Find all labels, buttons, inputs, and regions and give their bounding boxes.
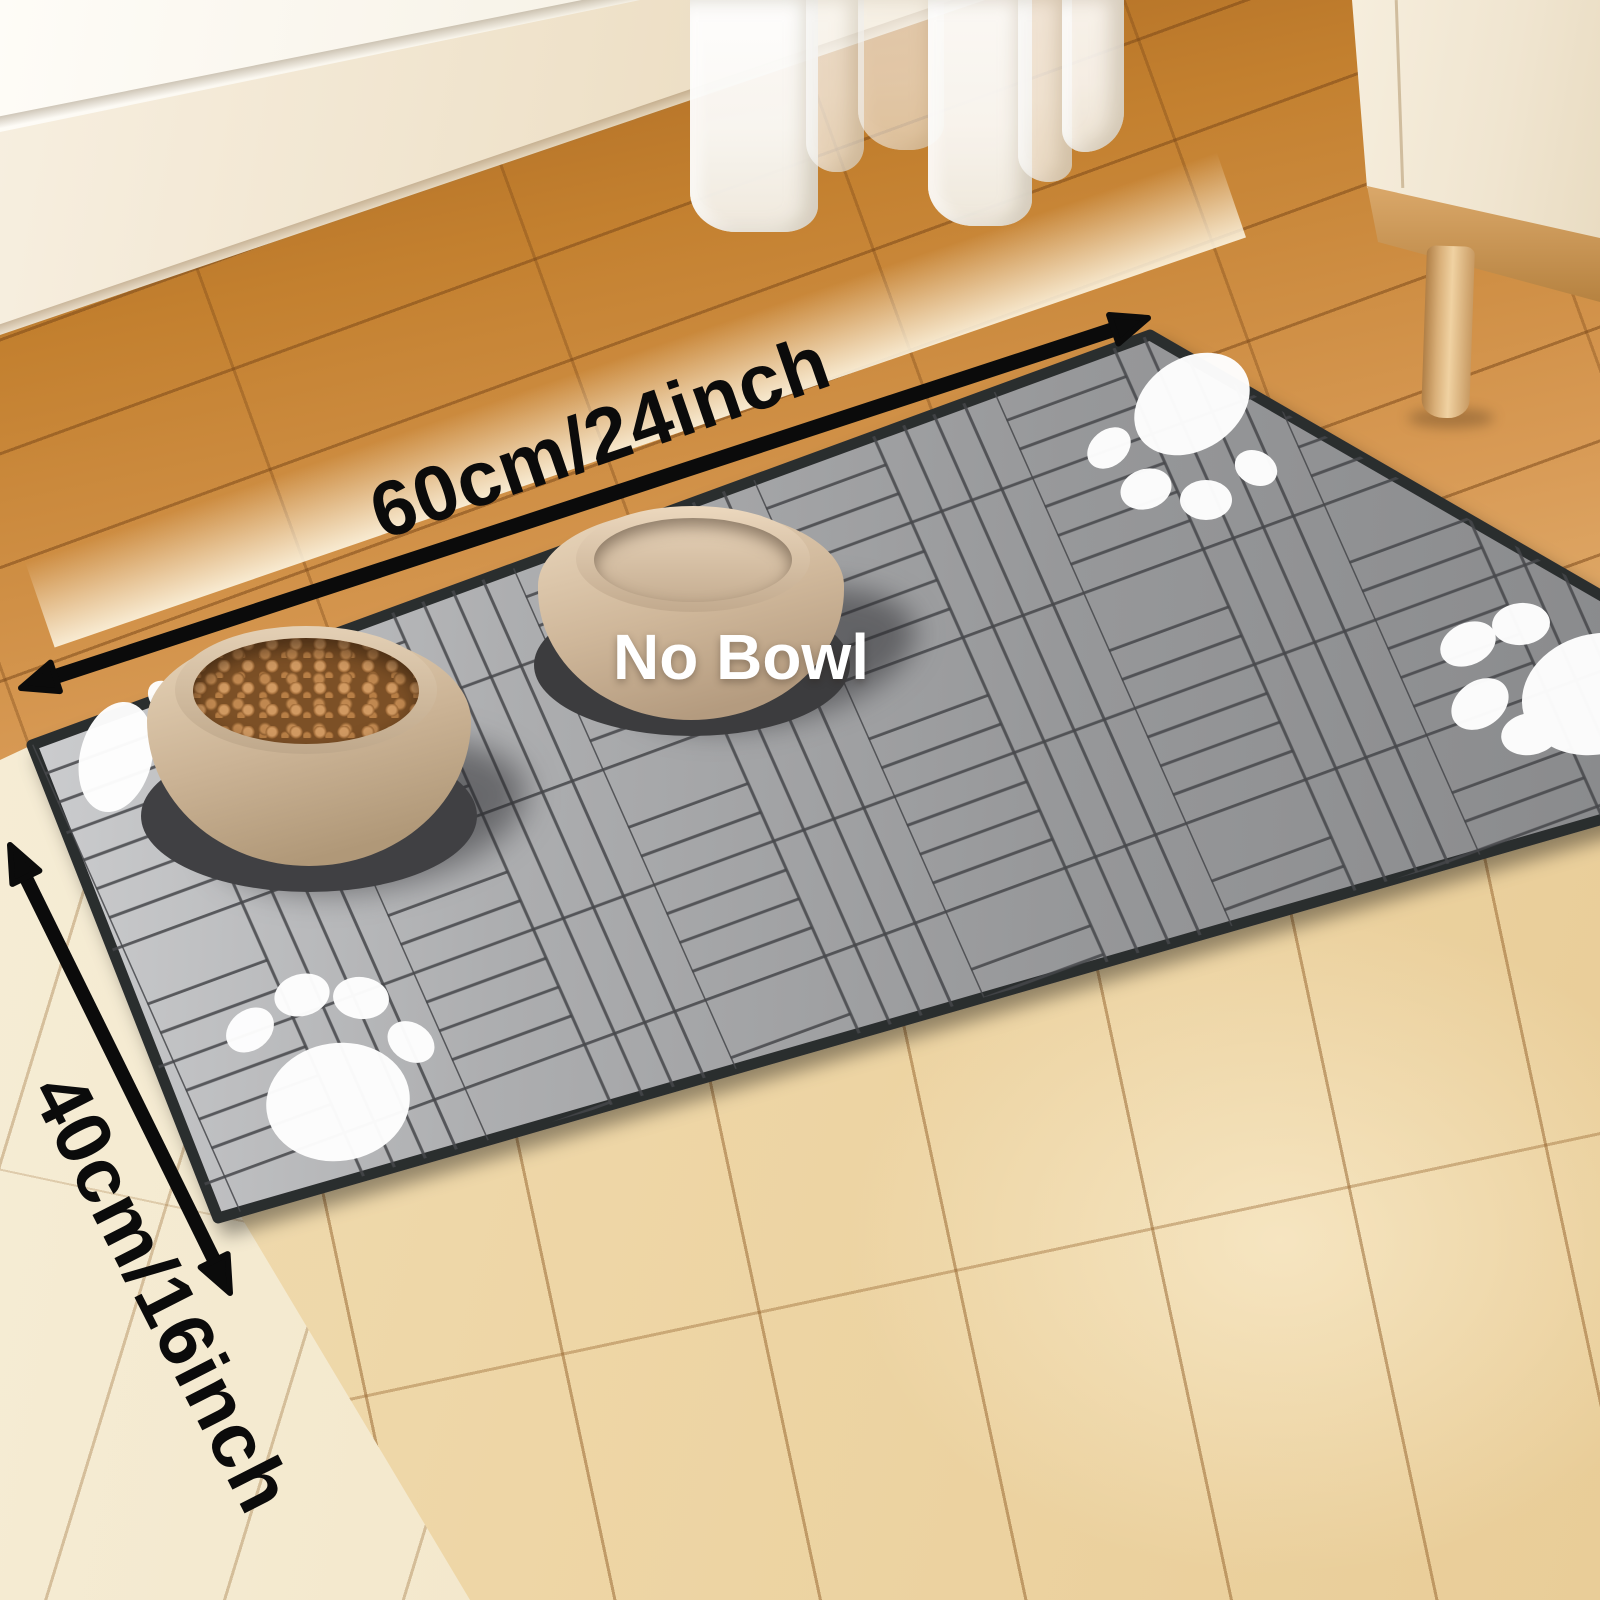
no-bowl-label: No Bowl [613, 620, 869, 694]
mat-herringbone-pattern [32, 335, 1600, 1218]
product-photo-scene: 60cm/24inch 40cm/16inch No Bowl [0, 0, 1600, 1600]
mat-surface [32, 335, 1600, 1218]
